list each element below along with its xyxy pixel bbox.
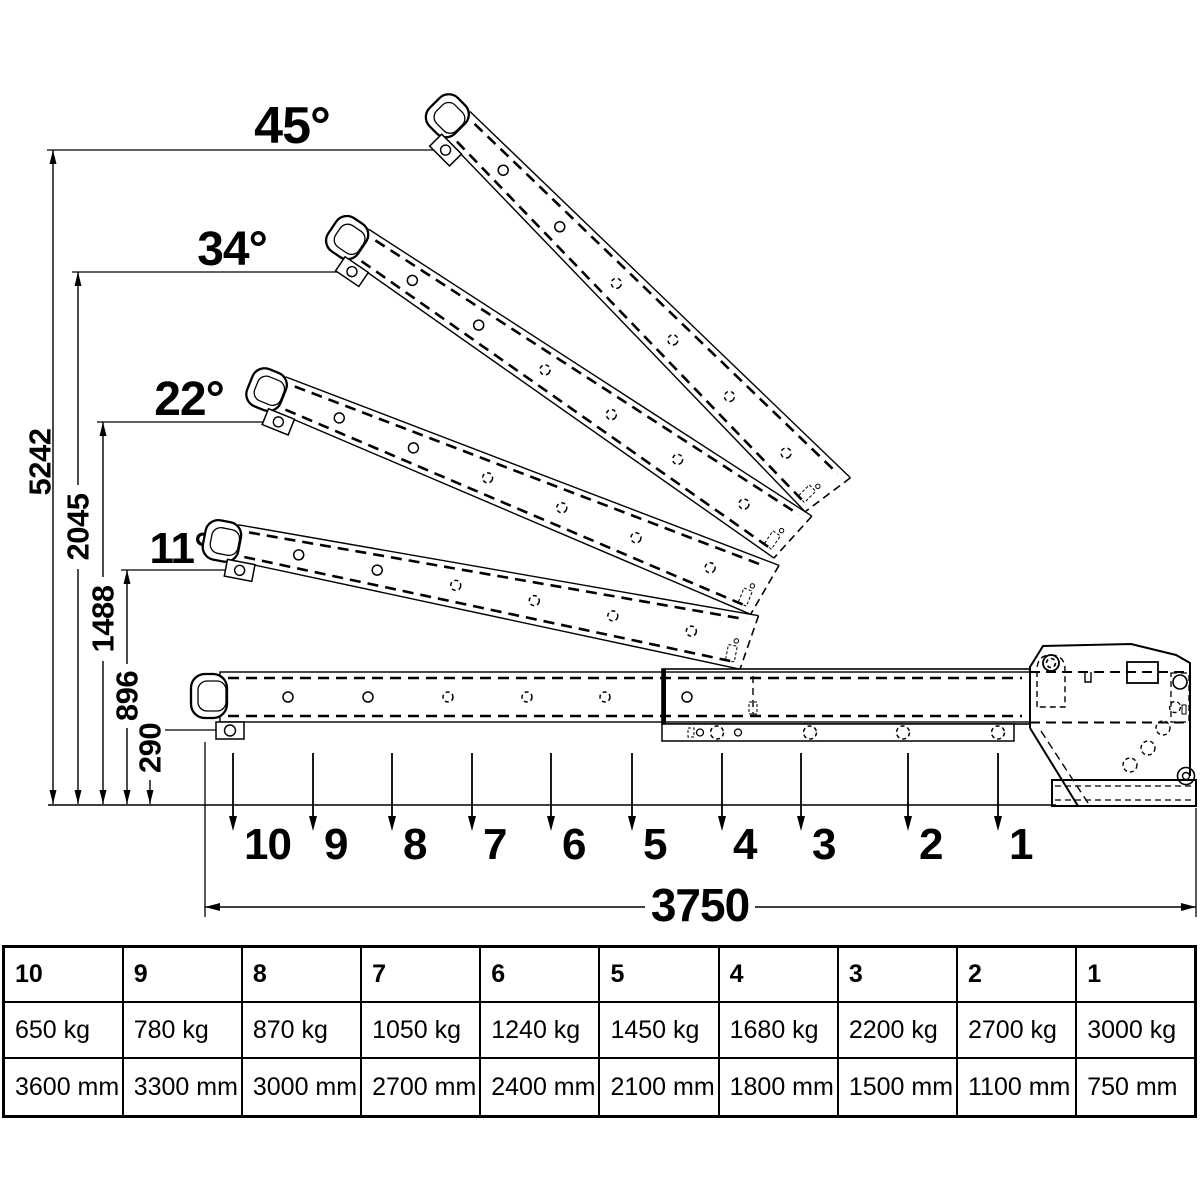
load-cell: 870 kg	[242, 1002, 361, 1058]
reach-cell: 1800 mm	[719, 1058, 838, 1117]
reach-cell: 750 mm	[1076, 1058, 1195, 1117]
tip-plate	[216, 722, 244, 739]
position-label-3: 3	[812, 820, 835, 869]
hook-positions: 10 9 8 7 6 5 4 3 2 1	[229, 753, 1033, 869]
position-header-cell: 6	[480, 947, 599, 1003]
reach-row: 3600 mm 3300 mm 3000 mm 2700 mm 2400 mm …	[4, 1058, 1196, 1117]
position-header-cell: 2	[957, 947, 1076, 1003]
height-label-5242: 5242	[23, 429, 58, 496]
position-header-cell: 5	[599, 947, 718, 1003]
position-label-4: 4	[733, 820, 758, 869]
load-cell: 2700 kg	[957, 1002, 1076, 1058]
position-label-6: 6	[562, 820, 585, 869]
base-unit	[1030, 644, 1196, 806]
position-header-cell: 3	[838, 947, 957, 1003]
position-label-1: 1	[1009, 820, 1033, 869]
position-label-9: 9	[324, 820, 347, 869]
height-label-896: 896	[110, 671, 145, 721]
position-header-cell: 9	[123, 947, 242, 1003]
jib-horizontal	[191, 669, 1030, 741]
angle-label-45: 45°	[254, 97, 330, 155]
angle-label-11: 11°	[149, 524, 210, 573]
position-label-5: 5	[643, 820, 667, 869]
load-cell: 1050 kg	[361, 1002, 480, 1058]
crane-jib-drawing-page: 5242 2045 1488 896 290 45° 34° 22° 11°	[0, 0, 1200, 1200]
reach-cell: 3000 mm	[242, 1058, 361, 1117]
reach-cell: 2100 mm	[599, 1058, 718, 1117]
position-label-7: 7	[483, 820, 506, 869]
reach-cell: 2700 mm	[361, 1058, 480, 1117]
position-label-2: 2	[919, 820, 942, 869]
position-label-8: 8	[403, 820, 427, 869]
total-length-dimension: 3750	[205, 742, 1196, 931]
total-length-label: 3750	[651, 879, 749, 931]
height-label-2045: 2045	[61, 493, 96, 560]
reach-cell: 1100 mm	[957, 1058, 1076, 1117]
angle-label-34: 34°	[197, 223, 267, 276]
position-label-10: 10	[244, 820, 291, 869]
load-cell: 1450 kg	[599, 1002, 718, 1058]
load-cell: 1240 kg	[480, 1002, 599, 1058]
reach-cell: 3300 mm	[123, 1058, 242, 1117]
reach-cell: 3600 mm	[4, 1058, 123, 1117]
position-header-cell: 10	[4, 947, 123, 1003]
reach-cell: 1500 mm	[838, 1058, 957, 1117]
load-row: 650 kg 780 kg 870 kg 1050 kg 1240 kg 145…	[4, 1002, 1196, 1058]
position-header-cell: 7	[361, 947, 480, 1003]
load-cell: 1680 kg	[719, 1002, 838, 1058]
load-capacity-table: 10 9 8 7 6 5 4 3 2 1 650 kg 780 kg 870 k…	[2, 945, 1197, 1118]
load-cell: 2200 kg	[838, 1002, 957, 1058]
crane-diagram: 5242 2045 1488 896 290 45° 34° 22° 11°	[0, 0, 1200, 942]
load-cell: 3000 kg	[1076, 1002, 1195, 1058]
position-header-cell: 8	[242, 947, 361, 1003]
position-header-row: 10 9 8 7 6 5 4 3 2 1	[4, 947, 1196, 1003]
hook-eye	[191, 674, 227, 718]
height-label-290: 290	[133, 723, 168, 773]
reach-cell: 2400 mm	[480, 1058, 599, 1117]
position-header-cell: 4	[719, 947, 838, 1003]
load-cell: 780 kg	[123, 1002, 242, 1058]
height-label-1488: 1488	[86, 585, 121, 652]
angle-label-22: 22°	[154, 373, 224, 426]
position-header-cell: 1	[1076, 947, 1195, 1003]
load-cell: 650 kg	[4, 1002, 123, 1058]
